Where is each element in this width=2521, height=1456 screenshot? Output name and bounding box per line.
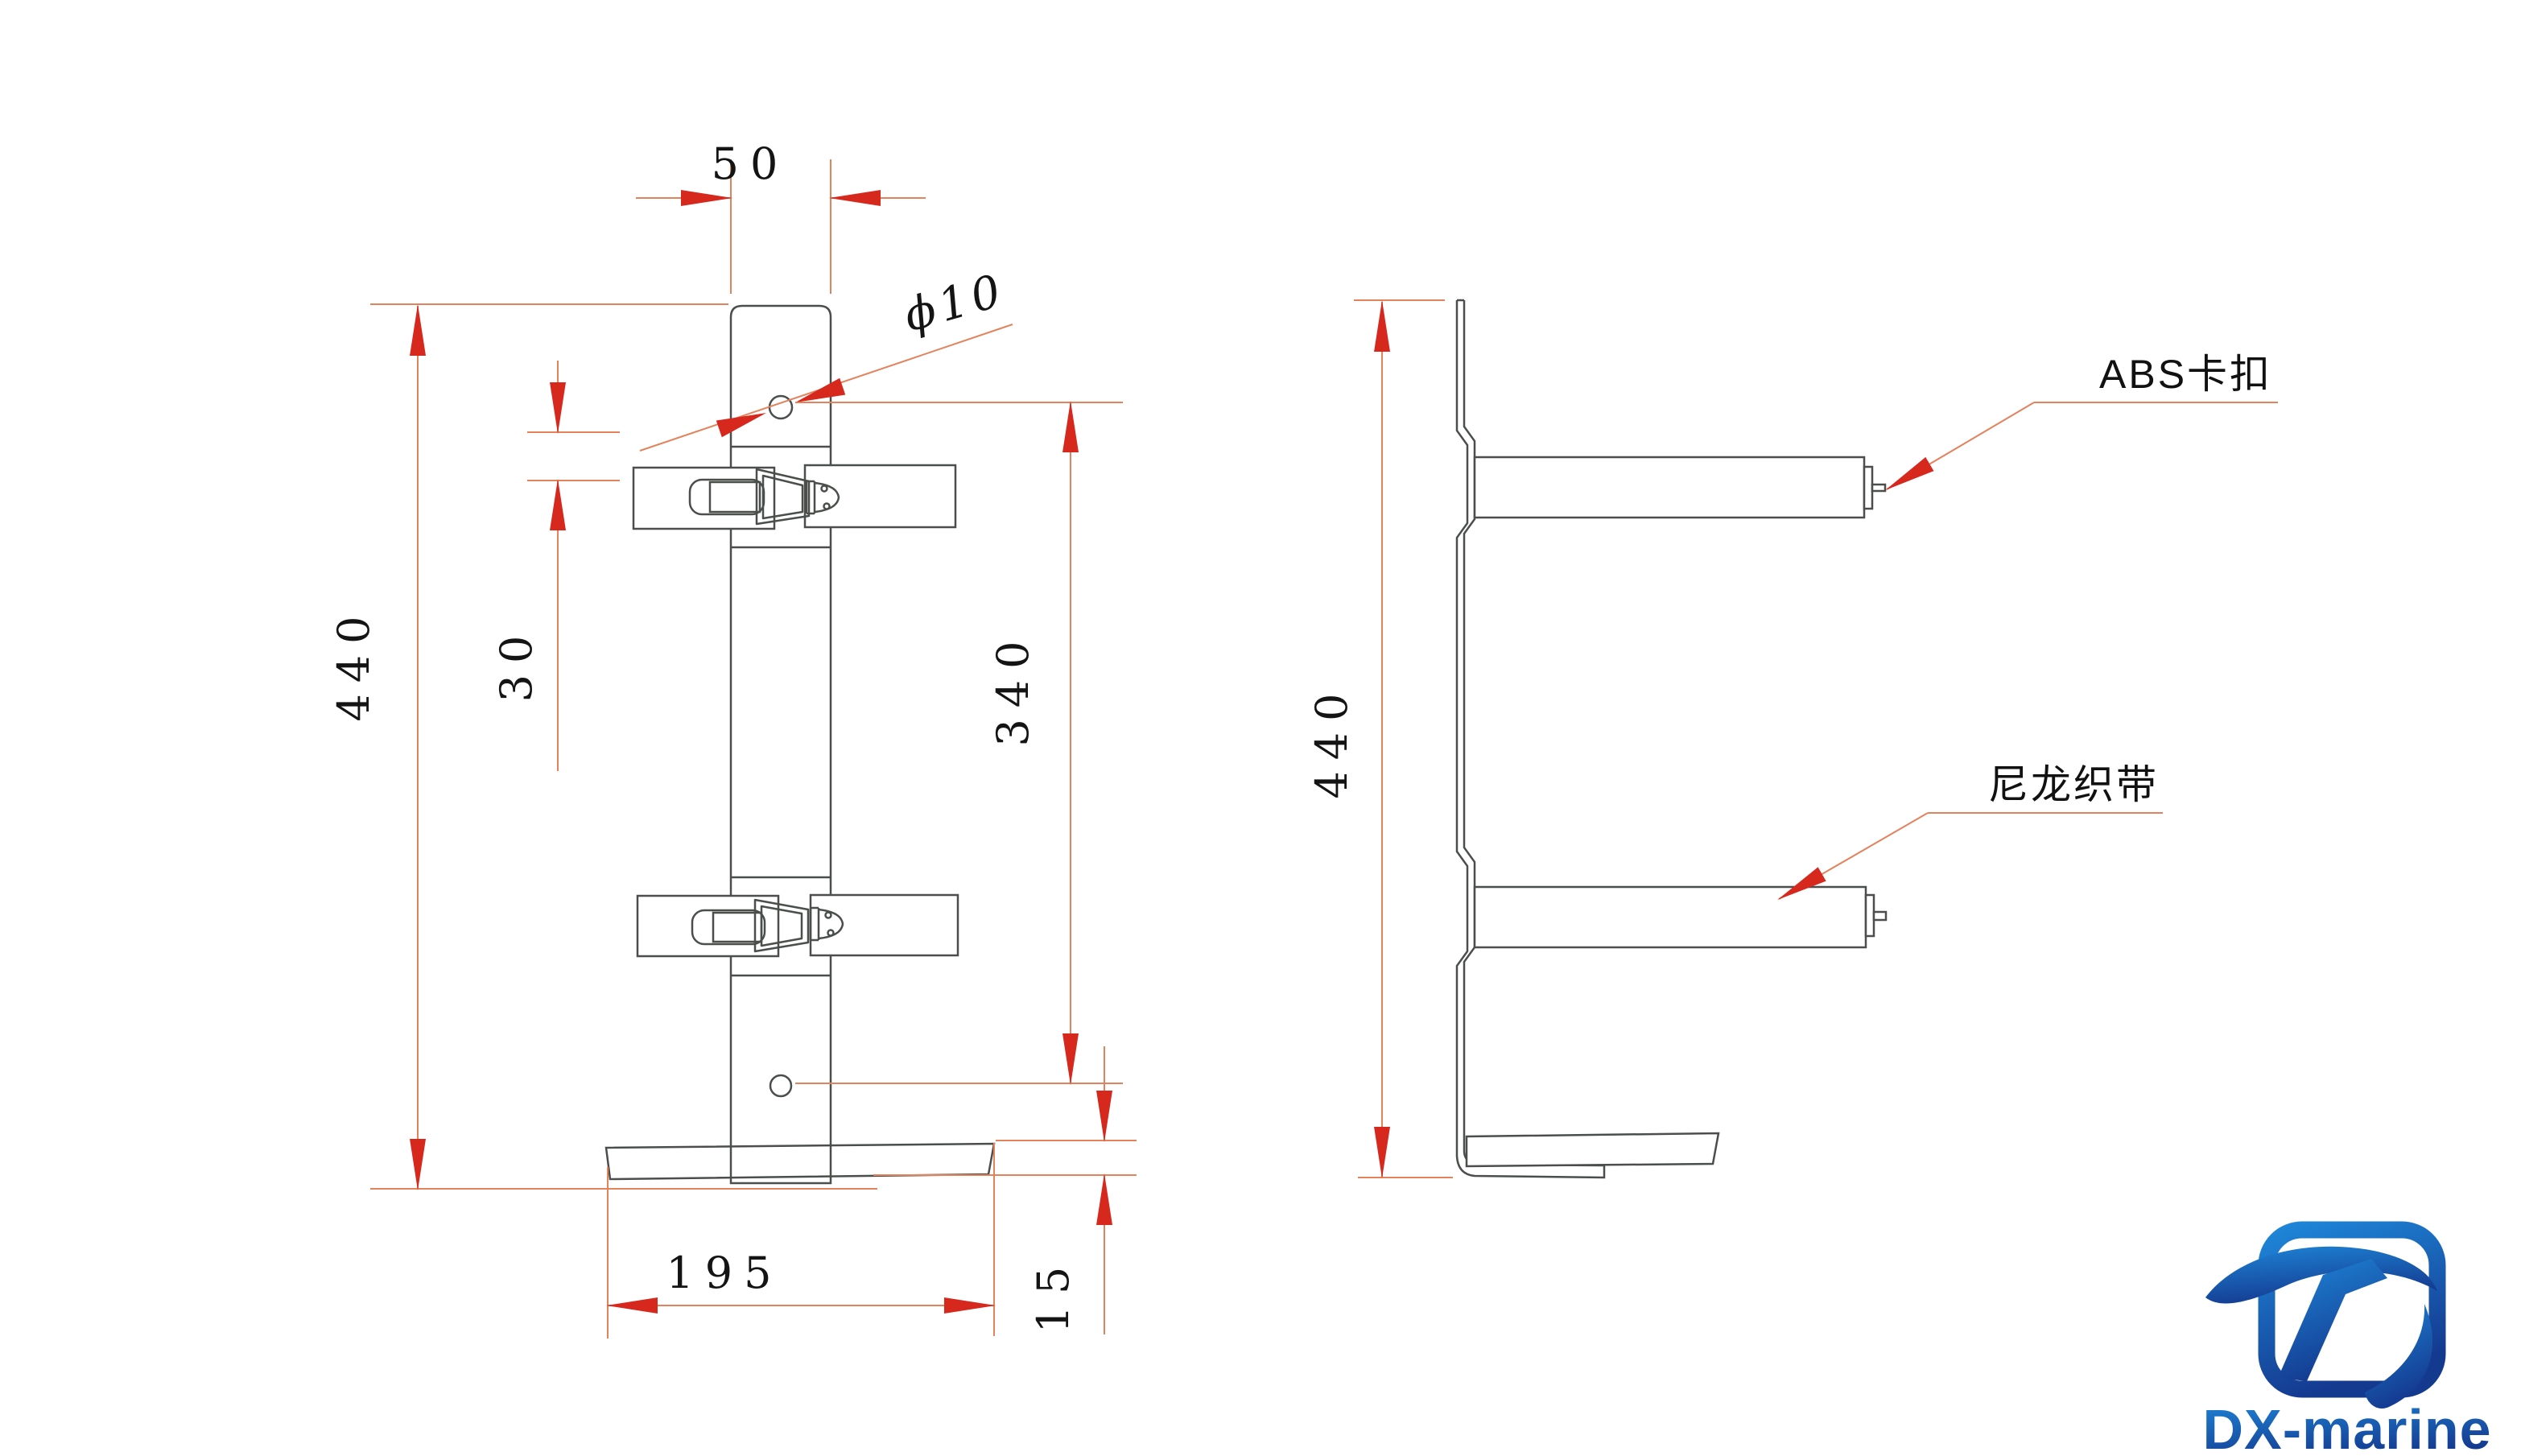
bottom-hole: [770, 1075, 791, 1096]
lower-prong-nub: [1874, 912, 1886, 920]
lower-prong: [1475, 887, 1886, 947]
post-outline: [731, 306, 831, 1183]
logo-wordmark: DX-marine: [2202, 1398, 2491, 1456]
leader-abs-buckle: [1887, 402, 2278, 489]
side-foot: [1467, 1133, 1718, 1166]
front-view: [606, 306, 994, 1183]
dim-30: [527, 361, 620, 771]
dim-15: [873, 1046, 1137, 1334]
logo: DX-marine: [2202, 1230, 2491, 1456]
dim-50-value: 50: [712, 138, 790, 189]
dim-195-value: 195: [666, 1248, 782, 1298]
upper-prong: [1475, 457, 1885, 518]
label-abs-buckle: ABS卡扣: [2099, 352, 2272, 397]
label-nylon-webbing: 尼龙织带: [1988, 762, 2159, 807]
dim-30-value: 30: [491, 625, 542, 703]
dim-440-front-value: 440: [328, 604, 379, 721]
upper-prong-nub: [1872, 485, 1885, 491]
side-plate-profile: [1457, 300, 1604, 1178]
drawing-canvas: 50 ϕ10 30 440 340 195 15 440 ABS卡扣 尼龙织带 …: [0, 0, 2521, 1456]
dim-195: [608, 1143, 994, 1338]
logo-tail-swoosh: [2365, 1304, 2432, 1409]
top-hole: [770, 396, 792, 419]
dim-440-side-value: 440: [1306, 682, 1357, 798]
dim-440-front: [370, 304, 877, 1189]
dim-phi10-leader: [640, 324, 1013, 451]
dim-15-value: 15: [1028, 1256, 1079, 1334]
bracket-drawing: 50 ϕ10 30 440 340 195 15 440 ABS卡扣 尼龙织带 …: [0, 0, 2521, 1456]
lower-strap-assembly: [637, 895, 958, 956]
side-view: [1457, 300, 1886, 1178]
upper-strap-assembly: [633, 465, 955, 529]
base-plate: [606, 1144, 994, 1179]
dim-340-value: 340: [988, 629, 1038, 746]
dim-440-side: [1354, 300, 1453, 1178]
